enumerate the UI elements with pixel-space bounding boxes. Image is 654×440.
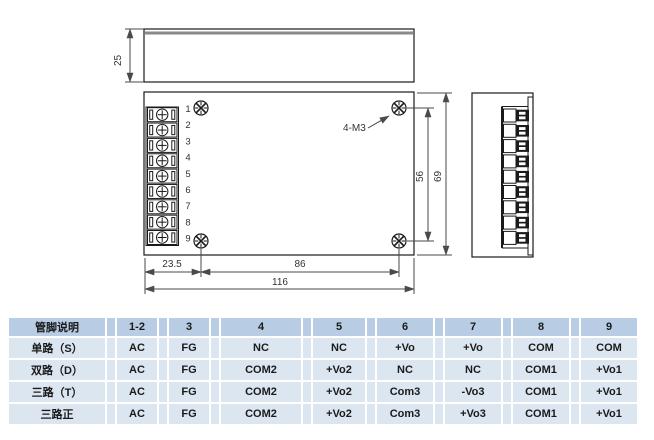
- end-view: [472, 93, 533, 257]
- pin-table-cell: Com3: [377, 404, 433, 424]
- pin-table-header-cell: 8: [513, 318, 569, 336]
- row-label: 双路（D）: [9, 360, 105, 380]
- pin-table-cell: COM2: [221, 360, 301, 380]
- column-separator: [435, 404, 443, 424]
- column-separator: [211, 318, 219, 336]
- pin-table-cell: +Vo1: [581, 360, 637, 380]
- pin-number: 9: [185, 234, 190, 245]
- pin-table-cell: COM: [581, 338, 637, 358]
- pin-table-cell: NC: [445, 360, 501, 380]
- pin-table-cell: FG: [169, 338, 209, 358]
- column-separator: [503, 404, 511, 424]
- column-separator: [107, 360, 115, 380]
- pin-table-cell: AC: [117, 360, 157, 380]
- pin-number: 5: [185, 169, 190, 180]
- terminal-side-icon: [504, 124, 530, 137]
- pin-table-cell: FG: [169, 382, 209, 402]
- pin-table-cell: NC: [377, 360, 433, 380]
- pin-table-cell: NC: [313, 338, 365, 358]
- dim-23-5-label: 23.5: [162, 259, 182, 270]
- pin-number: 3: [185, 136, 190, 147]
- pin-table-cell: -Vo3: [445, 382, 501, 402]
- terminal-side-icon: [504, 155, 530, 168]
- column-separator: [211, 338, 219, 358]
- pin-table-cell: +Vo1: [581, 382, 637, 402]
- column-separator: [367, 318, 375, 336]
- terminal-side-icon: [504, 216, 530, 229]
- mechanical-drawing: 25 1 2 3 4 5 6 7 8 9: [0, 0, 654, 309]
- pin-table-cell: AC: [117, 404, 157, 424]
- column-separator: [107, 382, 115, 402]
- column-separator: [211, 382, 219, 402]
- dim-69-label: 69: [433, 170, 444, 182]
- end-view-terminal-strip: [504, 109, 530, 244]
- terminal-side-icon: [504, 170, 530, 183]
- screw-spec-label: 4-M3: [343, 123, 366, 134]
- terminal-block: [146, 107, 179, 246]
- column-separator: [159, 318, 167, 336]
- pin-table-cell: +Vo1: [581, 404, 637, 424]
- terminal-icon: [148, 123, 178, 137]
- terminal-icon: [148, 200, 178, 214]
- pin-table-cell: NC: [221, 338, 301, 358]
- dim-side-height: 25: [113, 29, 144, 82]
- dim-horizontal-group: 23.5 86 116: [145, 249, 414, 294]
- pin-table-cell: FG: [169, 360, 209, 380]
- column-separator: [303, 338, 311, 358]
- terminal-side-icon: [504, 109, 530, 122]
- pin-table-row-triple-positive: 三路正 AC FG COM2 +Vo2 Com3 +Vo3 COM1 +Vo1: [9, 404, 637, 424]
- mounting-screw-icon: [392, 234, 406, 248]
- terminal-icon: [148, 154, 178, 168]
- terminal-icon: [148, 231, 178, 245]
- pin-table-header-cell: 9: [581, 318, 637, 336]
- pin-table-cell: Com3: [377, 382, 433, 402]
- pin-table-cell: +Vo: [445, 338, 501, 358]
- pin-number: 8: [185, 217, 190, 228]
- dim-25-label: 25: [113, 54, 124, 66]
- column-separator: [435, 318, 443, 336]
- mounting-screw-icon: [194, 101, 208, 115]
- column-separator: [503, 382, 511, 402]
- pin-table-header-row: 管脚说明 1-2 3 4 5 6 7 8 9: [9, 318, 637, 336]
- pin-table-cell: AC: [117, 382, 157, 402]
- column-separator: [107, 338, 115, 358]
- column-separator: [435, 338, 443, 358]
- column-separator: [571, 360, 579, 380]
- terminal-icon: [148, 215, 178, 229]
- pin-table-header-cell: 5: [313, 318, 365, 336]
- terminal-icon: [148, 138, 178, 152]
- column-separator: [159, 404, 167, 424]
- top-view: 1 2 3 4 5 6 7 8 9 4-M3: [144, 92, 414, 255]
- pin-number: 6: [185, 185, 190, 196]
- pin-table-cell: +Vo2: [313, 404, 365, 424]
- terminal-icon: [148, 169, 178, 183]
- column-separator: [303, 318, 311, 336]
- pin-table-header-cell: 1-2: [117, 318, 157, 336]
- column-separator: [211, 404, 219, 424]
- column-separator: [367, 360, 375, 380]
- column-separator: [503, 360, 511, 380]
- pin-table-cell: COM2: [221, 404, 301, 424]
- pin-number: 7: [185, 201, 190, 212]
- column-separator: [107, 318, 115, 336]
- column-separator: [367, 382, 375, 402]
- pin-table-row-triple: 三路（T） AC FG COM2 +Vo2 Com3 -Vo3 COM1 +Vo…: [9, 382, 637, 402]
- dim-86-label: 86: [294, 259, 306, 270]
- column-separator: [571, 318, 579, 336]
- pin-table-cell: COM1: [513, 404, 569, 424]
- pin-table-cell: FG: [169, 404, 209, 424]
- pin-table-cell: COM1: [513, 382, 569, 402]
- pin-table-row-single: 单路（S） AC FG NC NC +Vo +Vo COM COM: [9, 338, 637, 358]
- pin-number: 4: [185, 153, 190, 164]
- column-separator: [303, 404, 311, 424]
- pin-table-cell: +Vo2: [313, 382, 365, 402]
- row-label: 三路正: [9, 404, 105, 424]
- column-separator: [571, 382, 579, 402]
- pin-table-header-cell: 管脚说明: [9, 318, 105, 336]
- column-separator: [503, 318, 511, 336]
- pin-description-table: 管脚说明 1-2 3 4 5 6 7 8 9 单路（S） AC FG NC: [7, 316, 639, 426]
- pin-table-cell: AC: [117, 338, 157, 358]
- pin-table-row-dual: 双路（D） AC FG COM2 +Vo2 NC NC COM1 +Vo1: [9, 360, 637, 380]
- column-separator: [435, 382, 443, 402]
- pin-number: 2: [185, 120, 190, 131]
- pin-table-cell: +Vo: [377, 338, 433, 358]
- dim-56-label: 56: [415, 170, 426, 182]
- side-view: [144, 29, 414, 82]
- terminal-icon: [148, 108, 178, 122]
- pin-table-header-cell: 3: [169, 318, 209, 336]
- pin-number: 1: [185, 104, 190, 115]
- row-label: 三路（T）: [9, 382, 105, 402]
- terminal-side-icon: [504, 140, 530, 153]
- terminal-side-icon: [504, 231, 530, 244]
- pin-table-cell: +Vo3: [445, 404, 501, 424]
- pin-table-cell: COM: [513, 338, 569, 358]
- column-separator: [435, 360, 443, 380]
- column-separator: [303, 360, 311, 380]
- pin-table-header-cell: 7: [445, 318, 501, 336]
- mounting-screw-icon: [194, 234, 208, 248]
- screw-spec-callout: 4-M3: [343, 116, 389, 134]
- pin-table-cell: +Vo2: [313, 360, 365, 380]
- pin-table-header-cell: 6: [377, 318, 433, 336]
- column-separator: [303, 382, 311, 402]
- terminal-side-icon: [504, 186, 530, 199]
- column-separator: [211, 360, 219, 380]
- column-separator: [107, 404, 115, 424]
- pin-table-cell: COM2: [221, 382, 301, 402]
- pin-numbers: 1 2 3 4 5 6 7 8 9: [185, 104, 190, 245]
- dim-116-label: 116: [272, 277, 288, 288]
- column-separator: [367, 404, 375, 424]
- row-label: 单路（S）: [9, 338, 105, 358]
- column-separator: [571, 404, 579, 424]
- column-separator: [159, 338, 167, 358]
- pin-table-cell: COM1: [513, 360, 569, 380]
- terminal-side-icon: [504, 201, 530, 214]
- column-separator: [503, 338, 511, 358]
- column-separator: [159, 360, 167, 380]
- column-separator: [367, 338, 375, 358]
- column-separator: [159, 382, 167, 402]
- mounting-screw-icon: [392, 101, 406, 115]
- terminal-icon: [148, 184, 178, 198]
- pin-table-header-cell: 4: [221, 318, 301, 336]
- column-separator: [571, 338, 579, 358]
